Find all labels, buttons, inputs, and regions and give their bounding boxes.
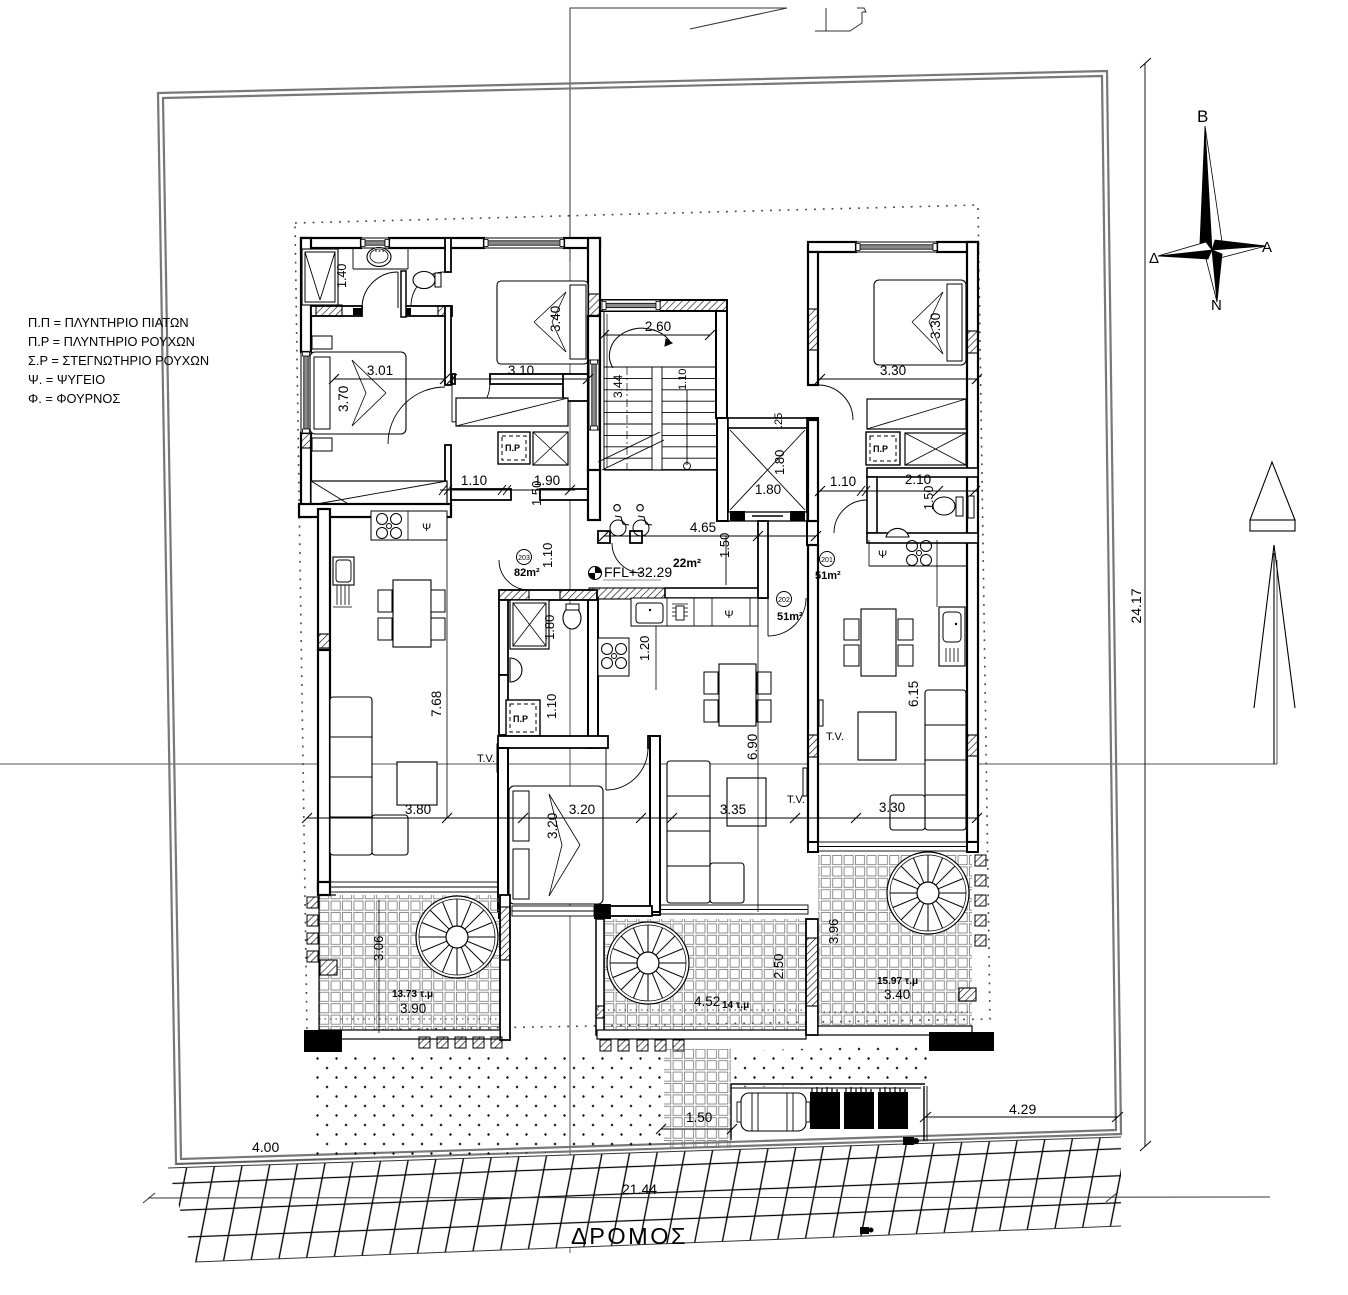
- svg-text:Δ: Δ: [1149, 250, 1159, 267]
- svg-text:1.50: 1.50: [717, 533, 732, 558]
- svg-text:B: B: [1197, 107, 1208, 126]
- svg-text:202: 202: [778, 597, 790, 604]
- svg-text:1.10: 1.10: [461, 473, 487, 488]
- svg-text:1.50: 1.50: [686, 1110, 712, 1125]
- svg-text:1.10: 1.10: [677, 369, 689, 390]
- svg-text:Ψ: Ψ: [422, 522, 431, 534]
- svg-text:1.80: 1.80: [755, 482, 781, 497]
- svg-text:1.20: 1.20: [637, 636, 652, 661]
- svg-text:51m²: 51m²: [815, 570, 841, 582]
- svg-text:1.50: 1.50: [529, 481, 544, 506]
- svg-text:.25: .25: [773, 413, 785, 428]
- svg-text:3.40: 3.40: [884, 987, 910, 1002]
- svg-text:3.44: 3.44: [611, 374, 625, 398]
- svg-text:4.29: 4.29: [1009, 1101, 1036, 1117]
- svg-text:Σ.Ρ = ΣΤΕΓΝΩΤΗΡΙΟ ΡΟΥΧΩΝ: Σ.Ρ = ΣΤΕΓΝΩΤΗΡΙΟ ΡΟΥΧΩΝ: [28, 353, 209, 368]
- svg-text:6.15: 6.15: [906, 681, 921, 707]
- svg-text:1.50: 1.50: [922, 486, 936, 510]
- svg-text:51m²: 51m²: [777, 611, 803, 623]
- svg-text:2.10: 2.10: [905, 472, 931, 487]
- svg-text:T.V.: T.V.: [826, 731, 844, 743]
- svg-text:3.35: 3.35: [720, 802, 746, 817]
- svg-text:1.10: 1.10: [540, 543, 555, 568]
- svg-text:3.20: 3.20: [569, 802, 595, 817]
- svg-text:3.70: 3.70: [336, 386, 351, 412]
- svg-text:FFL+32.29: FFL+32.29: [604, 564, 672, 580]
- svg-text:Ψ: Ψ: [878, 549, 887, 561]
- svg-text:201: 201: [821, 557, 833, 564]
- svg-text:Ψ. = ΨΥΓΕΙΟ: Ψ. = ΨΥΓΕΙΟ: [28, 372, 105, 387]
- svg-text:14 τ.μ: 14 τ.μ: [722, 1000, 749, 1011]
- svg-text:Π.Ρ: Π.Ρ: [513, 714, 528, 724]
- svg-text:Π.Ρ: Π.Ρ: [505, 443, 520, 453]
- svg-text:82m²: 82m²: [514, 567, 540, 579]
- svg-text:Φ. = ΦΟΥΡΝΟΣ: Φ. = ΦΟΥΡΝΟΣ: [28, 391, 120, 406]
- svg-text:1.10: 1.10: [544, 694, 559, 719]
- svg-text:22m²: 22m²: [673, 556, 701, 570]
- svg-text:3.90: 3.90: [400, 1001, 426, 1016]
- svg-text:24.17: 24.17: [1128, 588, 1144, 623]
- svg-text:4.52: 4.52: [694, 994, 720, 1009]
- svg-text:21.44: 21.44: [622, 1181, 657, 1197]
- svg-text:1.10: 1.10: [830, 474, 856, 489]
- svg-text:1.80: 1.80: [542, 615, 557, 640]
- svg-text:7.68: 7.68: [429, 691, 444, 717]
- svg-text:13.73 τ.μ: 13.73 τ.μ: [392, 989, 433, 1000]
- svg-text:15.97 τ.μ: 15.97 τ.μ: [877, 976, 918, 987]
- svg-text:3.40: 3.40: [548, 306, 563, 332]
- svg-text:3.06: 3.06: [371, 936, 386, 961]
- svg-text:3.10: 3.10: [508, 363, 534, 378]
- svg-text:Π.Ρ = ΠΛΥΝΤΗΡΙΟ ΡΟΥΧΩΝ: Π.Ρ = ΠΛΥΝΤΗΡΙΟ ΡΟΥΧΩΝ: [28, 334, 195, 349]
- svg-text:1.40: 1.40: [335, 264, 349, 288]
- svg-text:Π.Ρ: Π.Ρ: [873, 444, 888, 454]
- svg-text:Ψ: Ψ: [724, 609, 733, 621]
- svg-text:4.00: 4.00: [252, 1139, 279, 1155]
- svg-text:A: A: [1262, 239, 1272, 256]
- svg-text:T.V.: T.V.: [477, 753, 495, 765]
- svg-text:3.01: 3.01: [367, 363, 393, 378]
- svg-text:T.V.: T.V.: [787, 794, 805, 806]
- svg-text:3.30: 3.30: [880, 363, 906, 378]
- svg-text:3.30: 3.30: [928, 313, 943, 339]
- svg-text:2.50: 2.50: [771, 954, 786, 979]
- svg-text:Π.Π = ΠΛΥΝΤΗΡΙΟ ΠΙΑΤΩΝ: Π.Π = ΠΛΥΝΤΗΡΙΟ ΠΙΑΤΩΝ: [28, 315, 189, 330]
- svg-text:2.60: 2.60: [645, 319, 671, 334]
- svg-text:3.96: 3.96: [826, 919, 841, 944]
- svg-text:203: 203: [518, 555, 530, 562]
- svg-text:3.80: 3.80: [405, 802, 431, 817]
- svg-text:4.65: 4.65: [690, 520, 716, 535]
- svg-text:ΔΡΟΜΟΣ: ΔΡΟΜΟΣ: [571, 1223, 688, 1249]
- svg-text:3.30: 3.30: [879, 800, 905, 815]
- svg-text:1.80: 1.80: [772, 450, 787, 475]
- svg-text:3.20: 3.20: [545, 813, 560, 839]
